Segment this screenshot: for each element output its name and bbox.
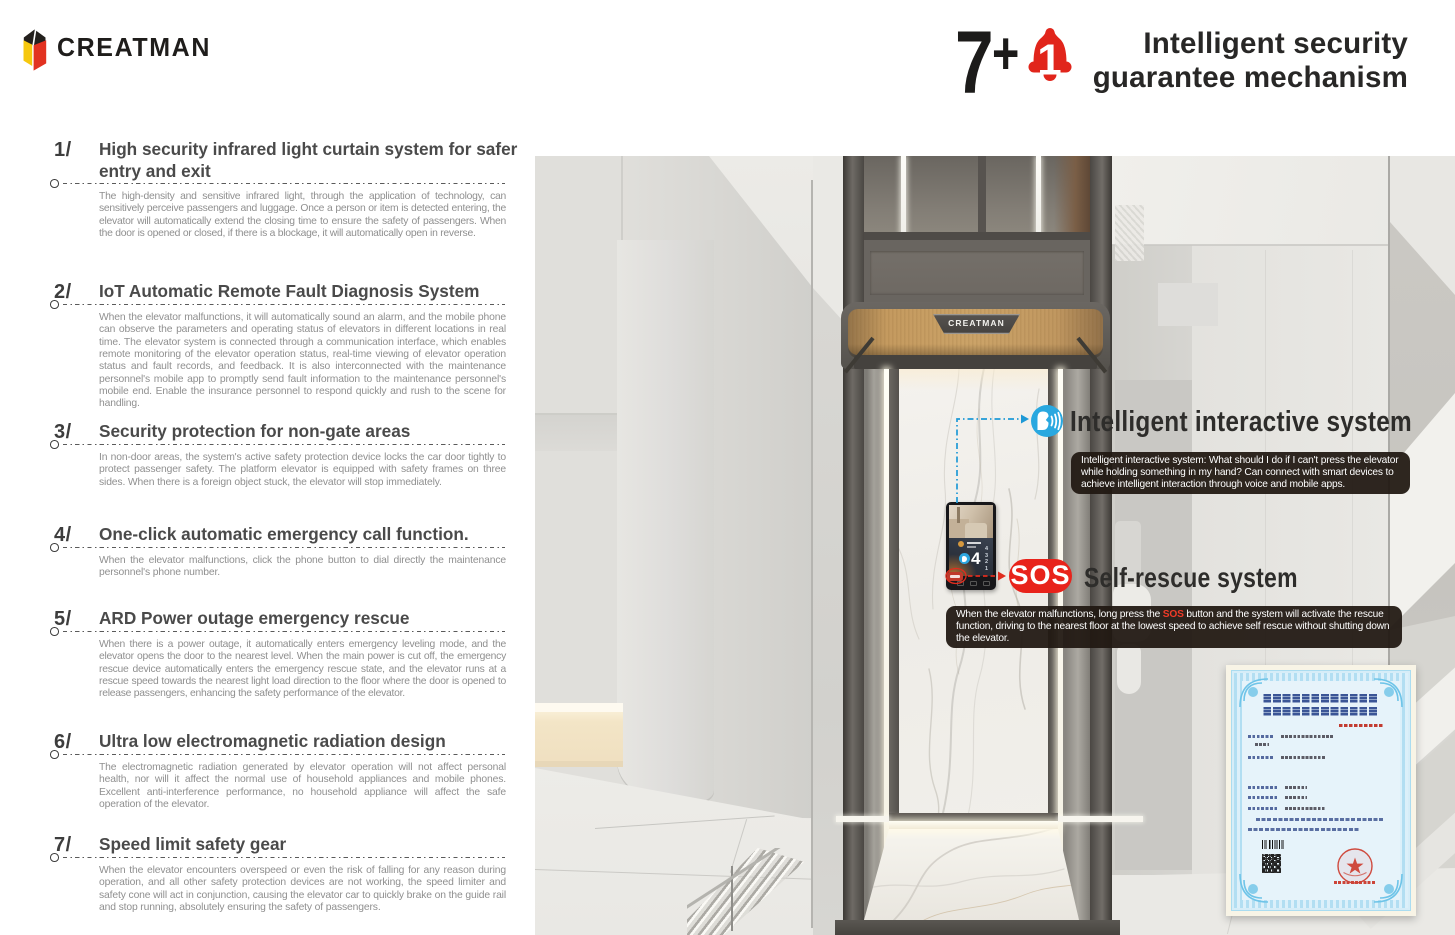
svg-text:1: 1 xyxy=(1037,36,1061,82)
